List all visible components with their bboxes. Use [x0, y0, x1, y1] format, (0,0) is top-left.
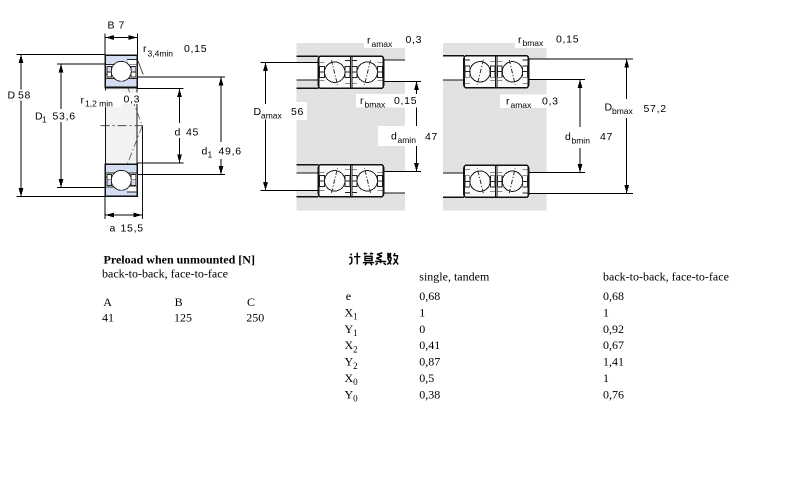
svg-text:0,38: 0,38	[419, 387, 440, 401]
svg-text:15,5: 15,5	[121, 223, 144, 235]
svg-text:bmin: bmin	[572, 136, 591, 146]
svg-text:1: 1	[603, 305, 609, 319]
svg-text:B: B	[175, 295, 183, 309]
svg-text:0,76: 0,76	[603, 387, 624, 401]
svg-text:0,15: 0,15	[184, 43, 207, 55]
svg-text:X0: X0	[345, 371, 359, 387]
svg-text:amax: amax	[261, 110, 283, 120]
svg-text:back-to-back, face-to-face: back-to-back, face-to-face	[603, 270, 729, 284]
svg-text:47: 47	[600, 131, 613, 143]
svg-text:bmax: bmax	[523, 38, 545, 48]
svg-text:Y1: Y1	[345, 322, 358, 338]
svg-text:A: A	[103, 295, 112, 309]
svg-text:single, tandem: single, tandem	[419, 270, 490, 284]
svg-text:47: 47	[425, 131, 438, 143]
svg-text:0,3: 0,3	[542, 96, 559, 108]
svg-text:53,6: 53,6	[53, 111, 76, 123]
svg-text:0,67: 0,67	[603, 338, 624, 352]
svg-text:0,3: 0,3	[406, 34, 423, 46]
svg-text:Preload when unmounted [N]: Preload when unmounted [N]	[104, 252, 255, 266]
svg-text:1: 1	[42, 115, 47, 125]
svg-text:0,87: 0,87	[419, 355, 440, 369]
svg-text:45: 45	[186, 127, 199, 139]
svg-text:X2: X2	[345, 338, 358, 354]
svg-text:1,2 min: 1,2 min	[85, 99, 113, 109]
svg-text:X1: X1	[345, 305, 358, 321]
svg-text:3,4min: 3,4min	[148, 49, 174, 59]
svg-text:0: 0	[419, 322, 425, 336]
svg-text:e: e	[346, 289, 351, 303]
svg-text:1: 1	[208, 149, 213, 159]
svg-text:amax: amax	[511, 100, 533, 110]
svg-text:56: 56	[291, 106, 304, 118]
svg-text:0,92: 0,92	[603, 322, 624, 336]
svg-text:d: d	[175, 127, 182, 139]
svg-text:bmax: bmax	[612, 106, 634, 116]
svg-text:0,3: 0,3	[124, 94, 141, 106]
svg-text:back-to-back, face-to-face: back-to-back, face-to-face	[102, 266, 228, 280]
svg-text:D: D	[8, 90, 16, 102]
svg-text:0,5: 0,5	[419, 371, 434, 385]
svg-text:1: 1	[419, 305, 425, 319]
svg-text:41: 41	[102, 310, 114, 324]
svg-text:1,41: 1,41	[603, 355, 624, 369]
svg-text:0,15: 0,15	[556, 34, 579, 46]
svg-text:amin: amin	[398, 135, 417, 145]
svg-text:0,15: 0,15	[394, 95, 417, 107]
svg-text:Y2: Y2	[345, 355, 358, 371]
svg-text:Y0: Y0	[345, 387, 359, 403]
svg-text:a: a	[110, 223, 117, 235]
svg-text:57,2: 57,2	[644, 103, 667, 115]
svg-text:C: C	[247, 295, 255, 309]
svg-text:58: 58	[18, 90, 31, 102]
svg-text:7: 7	[119, 20, 126, 32]
svg-text:0,41: 0,41	[419, 338, 440, 352]
svg-text:250: 250	[246, 310, 264, 324]
svg-text:B: B	[108, 20, 116, 32]
svg-text:1: 1	[603, 371, 609, 385]
svg-text:amax: amax	[372, 39, 394, 49]
svg-text:0,68: 0,68	[603, 289, 624, 303]
svg-text:bmax: bmax	[365, 100, 387, 110]
svg-text:125: 125	[174, 310, 192, 324]
svg-text:49,6: 49,6	[219, 145, 242, 157]
svg-text:0,68: 0,68	[419, 289, 440, 303]
